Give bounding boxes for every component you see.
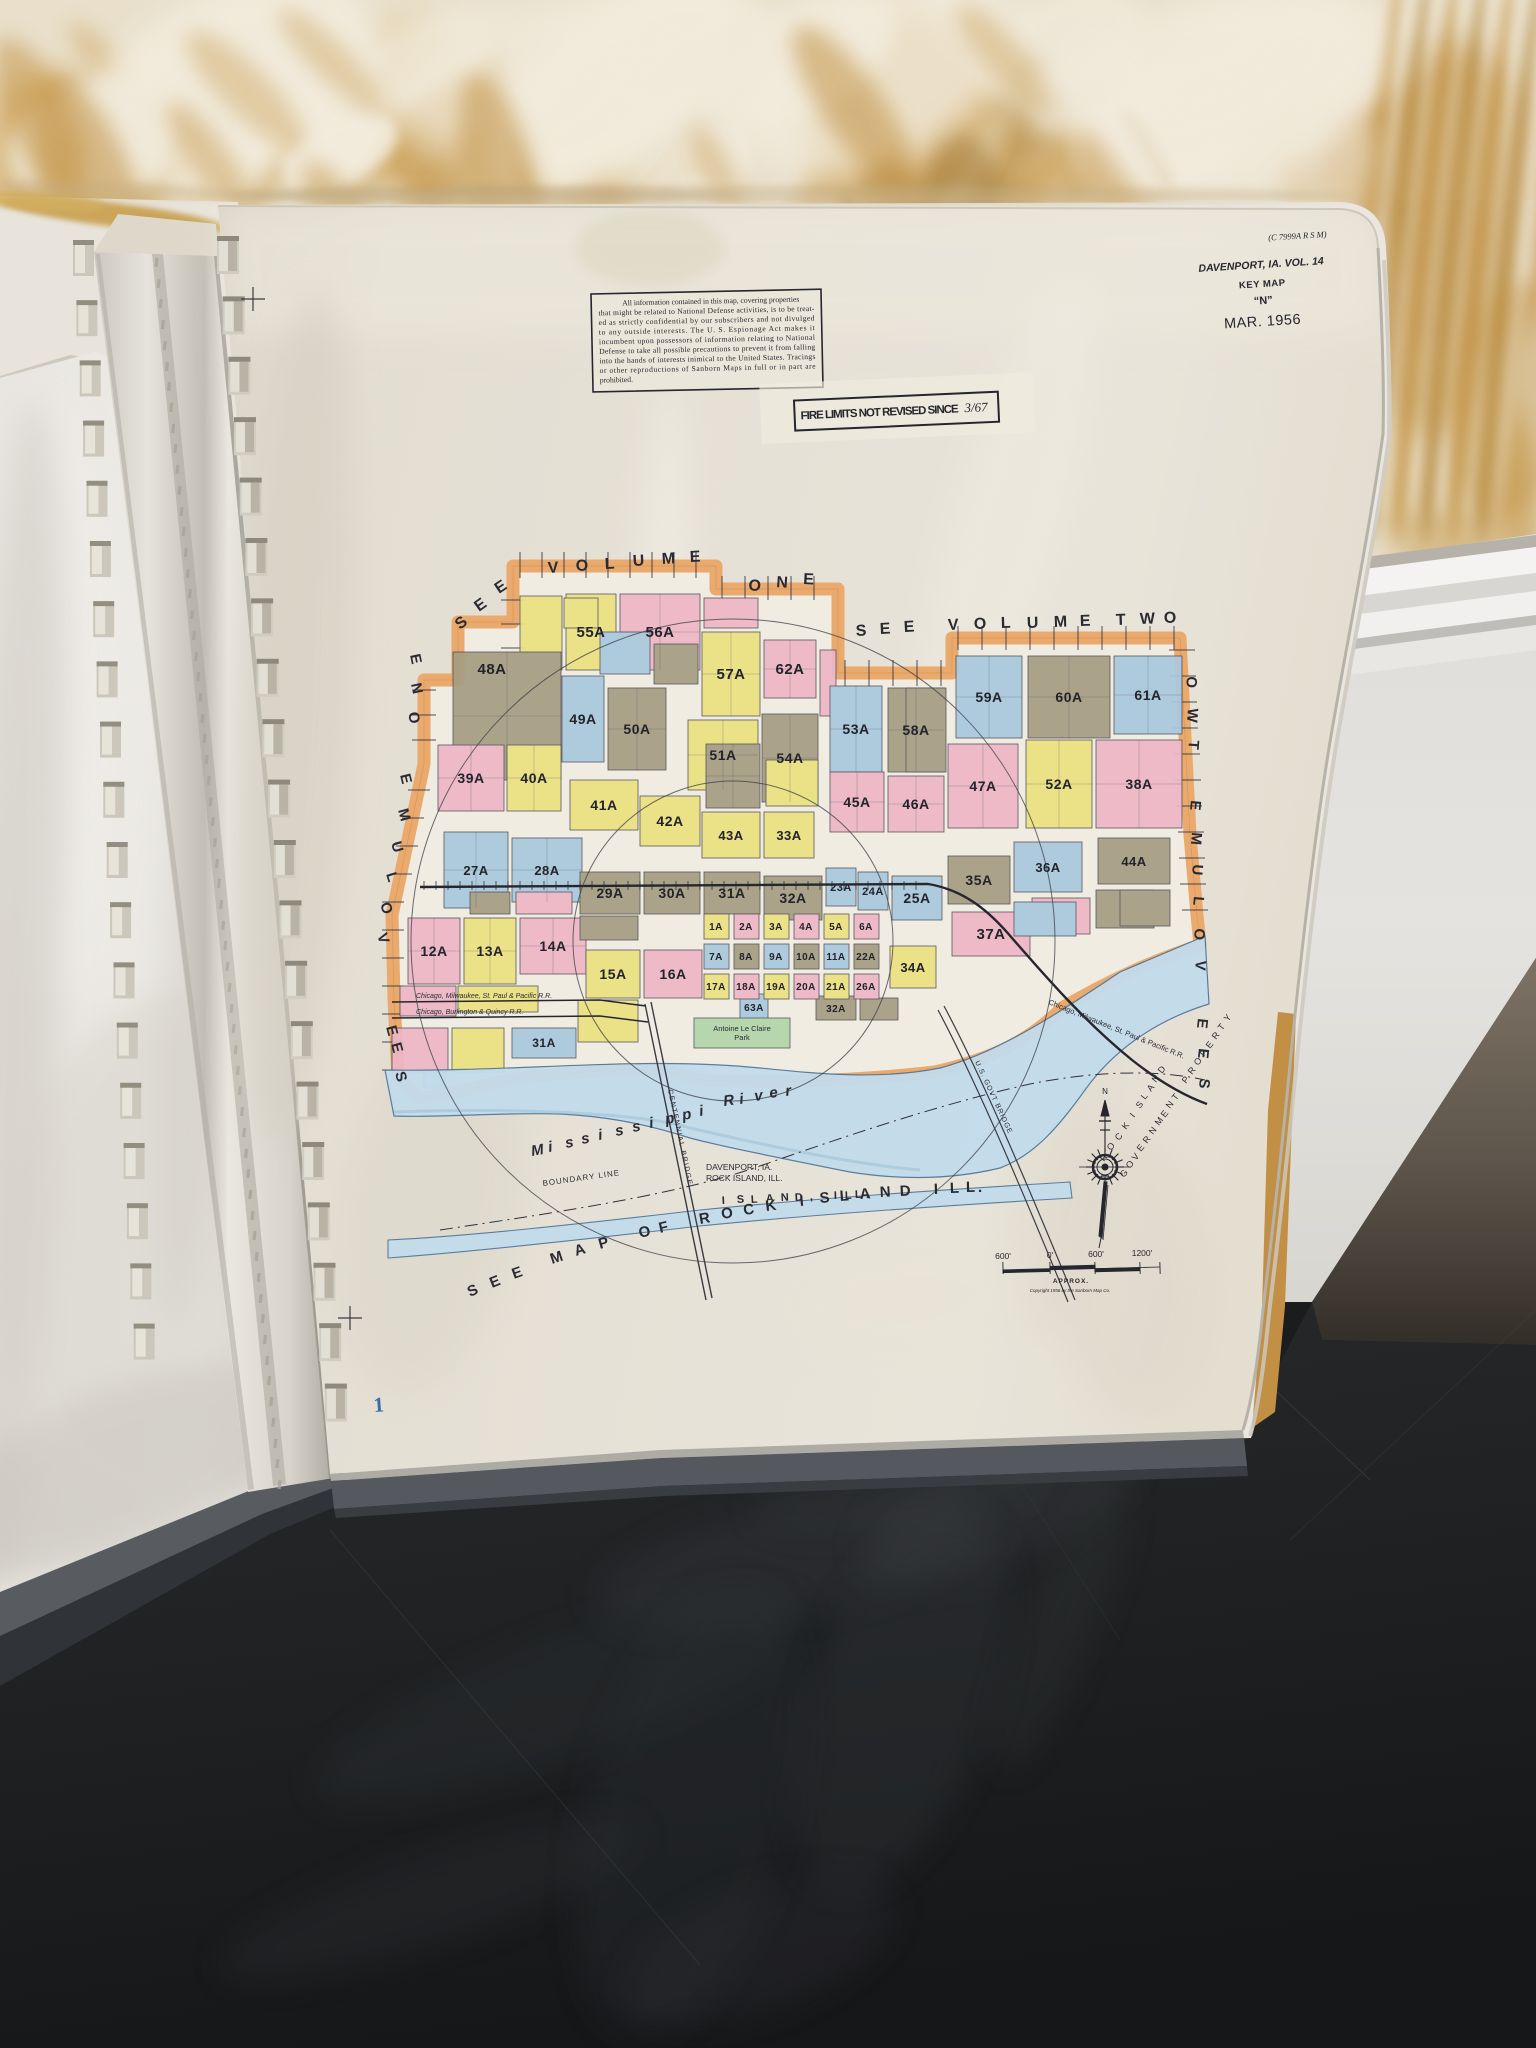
svg-text:39A: 39A (457, 770, 484, 786)
svg-text:63A: 63A (744, 1003, 764, 1014)
svg-text:38A: 38A (1125, 776, 1152, 792)
svg-text:20A: 20A (796, 982, 816, 993)
svg-text:D: D (899, 1182, 911, 1200)
svg-text:4A: 4A (799, 922, 813, 933)
svg-text:41A: 41A (590, 797, 617, 813)
svg-text:12A: 12A (420, 943, 447, 959)
svg-text:55A: 55A (576, 624, 605, 641)
svg-text:Chicago, Burlington & Quincy R: Chicago, Burlington & Quincy R.R. (416, 1009, 523, 1016)
svg-text:Antoine Le Claire: Antoine Le Claire (713, 1024, 771, 1033)
svg-text:600': 600' (1088, 1249, 1104, 1259)
svg-text:28A: 28A (534, 863, 559, 878)
svg-text:.: . (978, 1179, 982, 1196)
svg-text:6A: 6A (859, 922, 873, 933)
svg-text:S: S (819, 1189, 830, 1207)
svg-text:Chicago, Milwaukee, St. Paul &: Chicago, Milwaukee, St. Paul & Pacific R… (416, 993, 552, 1000)
svg-text:43A: 43A (718, 828, 743, 843)
svg-text:S: S (855, 622, 867, 640)
svg-text:M: M (1054, 614, 1068, 631)
svg-text:L: L (966, 1179, 975, 1196)
svg-text:T: T (1116, 612, 1127, 629)
svg-text:53A: 53A (842, 721, 869, 737)
svg-text:31A: 31A (532, 1036, 556, 1050)
svg-text:U: U (1188, 864, 1206, 876)
svg-text:15A: 15A (599, 966, 626, 982)
svg-text:36A: 36A (1035, 860, 1060, 875)
svg-text:N: N (879, 1183, 891, 1201)
svg-text:19A: 19A (766, 982, 786, 993)
svg-text:51A: 51A (709, 747, 736, 763)
svg-text:48A: 48A (477, 661, 506, 678)
svg-text:50A: 50A (623, 721, 650, 737)
svg-text:O: O (1182, 676, 1200, 689)
svg-text:I: I (834, 1190, 837, 1202)
svg-text:9A: 9A (769, 952, 783, 963)
svg-text:O: O (1190, 928, 1208, 941)
svg-text:33A: 33A (776, 828, 801, 843)
svg-text:30A: 30A (658, 885, 685, 901)
svg-text:46A: 46A (902, 796, 929, 812)
svg-text:29A: 29A (596, 885, 623, 901)
svg-text:N: N (781, 1192, 790, 1204)
svg-text:27A: 27A (463, 863, 488, 878)
svg-text:47A: 47A (969, 778, 996, 794)
svg-text:59A: 59A (975, 689, 1002, 705)
svg-text:54A: 54A (776, 750, 803, 766)
svg-text:DAVENPORT, IA.: DAVENPORT, IA. (706, 1162, 772, 1172)
svg-text:37A: 37A (976, 926, 1005, 943)
svg-text:5A: 5A (829, 922, 843, 933)
svg-text:23A: 23A (830, 882, 852, 894)
svg-text:7A: 7A (709, 952, 723, 963)
svg-text:8A: 8A (739, 952, 753, 963)
svg-text:T: T (1184, 740, 1202, 750)
svg-text:56A: 56A (645, 624, 674, 641)
svg-text:60A: 60A (1055, 689, 1082, 705)
svg-text:45A: 45A (843, 794, 870, 810)
svg-text:E: E (903, 618, 915, 636)
svg-text:K: K (764, 1197, 777, 1215)
svg-text:10A: 10A (796, 952, 816, 963)
svg-text:Park: Park (734, 1033, 750, 1042)
svg-text:E: E (1080, 613, 1092, 630)
svg-text:32A: 32A (826, 1004, 846, 1015)
svg-text:M: M (661, 550, 675, 568)
svg-text:3/67: 3/67 (963, 399, 988, 415)
svg-text:“N”: “N” (1253, 294, 1273, 307)
svg-text:,: , (810, 1191, 814, 1203)
svg-text:35A: 35A (965, 872, 992, 888)
svg-text:N: N (1102, 1087, 1108, 1096)
svg-text:M: M (1187, 832, 1205, 846)
svg-text:57A: 57A (716, 666, 745, 683)
svg-text:W: W (1183, 708, 1201, 724)
svg-text:61A: 61A (1134, 687, 1161, 703)
svg-text:42A: 42A (656, 813, 683, 829)
svg-text:L: L (839, 1187, 849, 1205)
svg-text:L: L (950, 1180, 960, 1197)
svg-text:O: O (974, 616, 987, 633)
svg-text:APPROX.: APPROX. (1053, 1278, 1089, 1285)
svg-text:1A: 1A (709, 922, 723, 933)
svg-text:E: E (1186, 800, 1204, 811)
svg-text:21A: 21A (826, 982, 846, 993)
svg-text:22A: 22A (856, 952, 876, 963)
svg-text:26A: 26A (856, 982, 876, 993)
svg-text:L: L (1189, 896, 1207, 907)
svg-text:E: E (803, 571, 815, 589)
svg-text:V: V (1191, 960, 1209, 971)
svg-text:U: U (1027, 615, 1039, 632)
svg-text:1: 1 (373, 1392, 385, 1417)
svg-text:S: S (1195, 1078, 1213, 1090)
svg-text:11A: 11A (826, 952, 845, 963)
svg-text:Copyright 1956 by the Sanborn: Copyright 1956 by the Sanborn Map Co. (1030, 1288, 1111, 1293)
svg-text:17A: 17A (706, 982, 726, 993)
svg-text:34A: 34A (900, 960, 925, 975)
svg-text:58A: 58A (902, 722, 929, 738)
svg-text:O: O (575, 557, 588, 575)
svg-text:32A: 32A (779, 890, 806, 906)
svg-text:1200': 1200' (1132, 1248, 1153, 1258)
svg-text:V: V (547, 559, 559, 577)
svg-text:2A: 2A (739, 922, 753, 933)
svg-text:I: I (934, 1181, 939, 1198)
svg-text:0': 0' (1047, 1250, 1054, 1260)
svg-text:prohibited.: prohibited. (600, 375, 633, 385)
svg-text:E: E (689, 548, 701, 566)
svg-text:A: A (859, 1185, 871, 1203)
svg-text:16A: 16A (659, 966, 686, 982)
svg-text:L: L (1001, 615, 1012, 632)
svg-text:24A: 24A (862, 886, 884, 898)
svg-text:W: W (1140, 610, 1157, 628)
svg-text:52A: 52A (1045, 776, 1072, 792)
svg-text:ROCK ISLAND, ILL.: ROCK ISLAND, ILL. (706, 1173, 783, 1183)
svg-text:E: E (1193, 1018, 1211, 1030)
svg-text:49A: 49A (569, 711, 596, 727)
svg-text:3A: 3A (769, 922, 783, 933)
svg-text:N: N (776, 574, 789, 592)
svg-text:40A: 40A (520, 770, 547, 786)
svg-text:V: V (948, 617, 960, 634)
svg-text:31A: 31A (718, 885, 745, 901)
svg-text:O: O (748, 577, 762, 595)
svg-text:25A: 25A (903, 890, 930, 906)
svg-text:O: O (1164, 610, 1177, 627)
svg-text:62A: 62A (775, 661, 804, 678)
svg-text:E: E (879, 620, 891, 638)
svg-text:18A: 18A (736, 982, 756, 993)
svg-text:44A: 44A (1121, 854, 1146, 869)
svg-text:14A: 14A (539, 938, 566, 954)
svg-text:600': 600' (995, 1251, 1011, 1261)
svg-text:L: L (604, 555, 615, 573)
svg-text:U: U (632, 552, 644, 570)
svg-text:13A: 13A (476, 943, 503, 959)
